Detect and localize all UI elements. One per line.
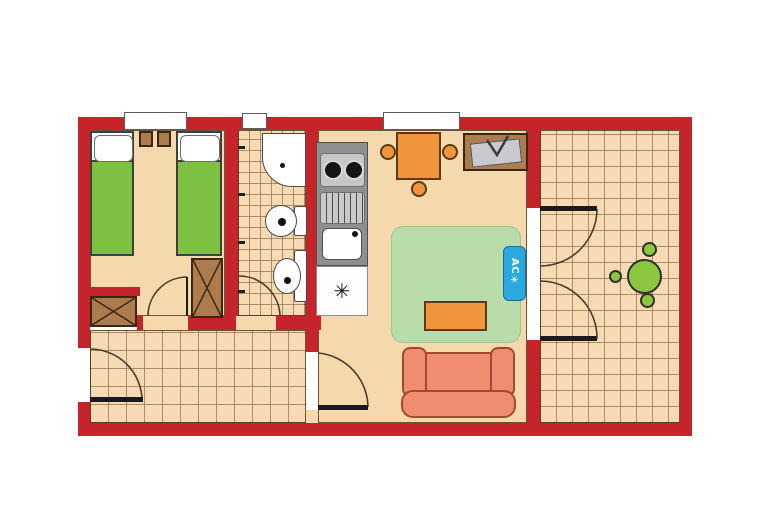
living-door-frame <box>306 352 318 410</box>
window-bathroom <box>242 113 267 129</box>
wall-bottom <box>78 423 692 436</box>
toilet-drain <box>278 218 286 226</box>
bidet-bowl <box>273 258 301 294</box>
snowflake-icon: ✳ <box>510 276 518 286</box>
nightstand-1 <box>139 131 153 147</box>
terrace-table <box>627 259 662 294</box>
dining-chair-right <box>442 144 458 160</box>
terrace-chair-top <box>642 242 657 257</box>
hall-closet <box>90 296 137 327</box>
hallway-floor <box>90 330 306 423</box>
sink-faucet <box>352 231 358 237</box>
wall-bedroom-bathroom <box>225 130 238 316</box>
wall-tick-3 <box>238 241 245 244</box>
closet-x-icon <box>92 298 135 325</box>
terrace-chair-bottom <box>640 293 655 308</box>
nightstand-2 <box>157 131 171 147</box>
wall-right <box>680 117 692 436</box>
wall-tick-4 <box>238 290 245 293</box>
pillow-2 <box>180 135 220 162</box>
bed-1-blanket <box>92 160 132 254</box>
bed-2-blanket <box>178 160 220 254</box>
burner-left-icon <box>323 160 343 180</box>
burner-right-icon <box>344 160 364 180</box>
window-living <box>383 112 460 130</box>
entrance-door-gap <box>78 348 90 402</box>
pillow-1 <box>94 135 133 162</box>
french-door-gap <box>527 208 540 340</box>
fridge: ✳ <box>316 266 368 316</box>
fridge-symbol-icon: ✳ <box>334 279 351 303</box>
sofa-backrest <box>401 390 516 418</box>
bedroom-door-gap <box>143 316 188 330</box>
bathroom-door-gap <box>236 316 276 330</box>
terrace-chair-left <box>609 270 622 283</box>
dining-table <box>396 132 441 180</box>
ac-label: AC <box>509 258 519 274</box>
floor-plan: ✳ AC ✳ <box>0 0 768 512</box>
wardrobe-x-icon <box>193 260 221 316</box>
window-bedroom <box>124 112 187 130</box>
wall-tick-2 <box>238 193 245 196</box>
coffee-table <box>424 301 487 331</box>
shower-drain <box>280 163 285 168</box>
drainboard <box>320 192 365 224</box>
wall-tick-1 <box>238 146 245 149</box>
ac-unit: AC ✳ <box>503 246 526 301</box>
bidet-drain <box>284 277 291 284</box>
dining-chair-left <box>380 144 396 160</box>
wall-closet-niche <box>78 287 140 296</box>
wardrobe <box>191 258 223 318</box>
dining-chair-bottom <box>411 181 427 197</box>
